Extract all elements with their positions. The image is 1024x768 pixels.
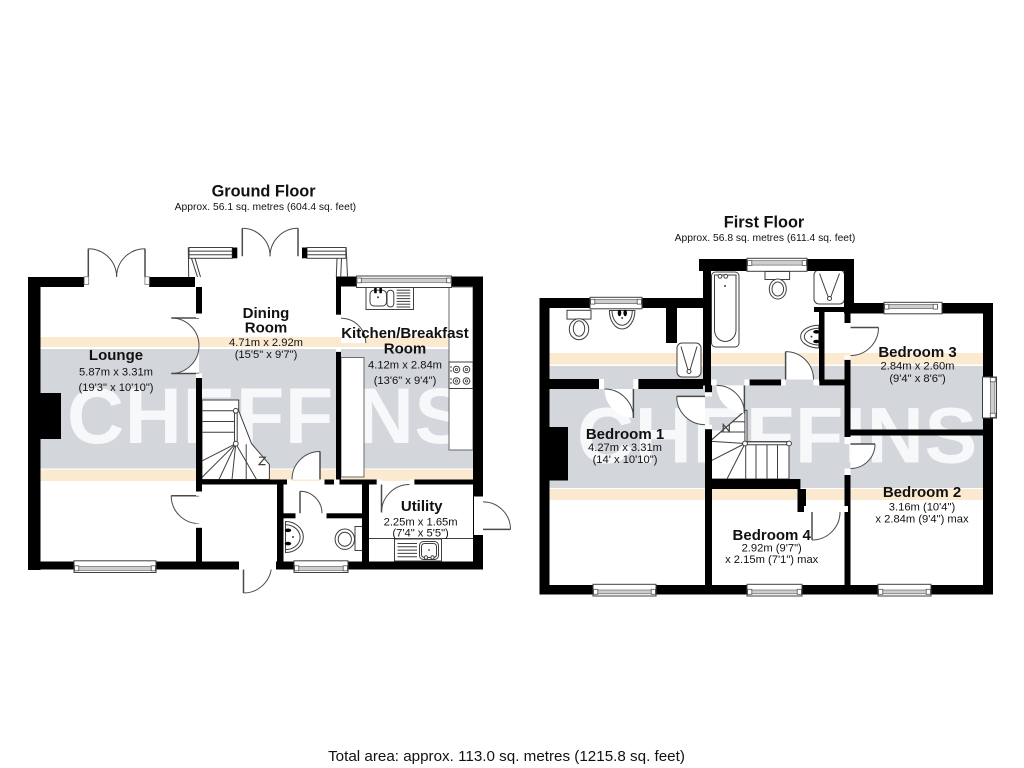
svg-text:Bedroom 2: Bedroom 2 — [883, 484, 961, 501]
svg-text:Approx. 56.8 sq. metres (611.4: Approx. 56.8 sq. metres (611.4 sq. feet) — [675, 233, 856, 244]
svg-text:Approx. 56.1 sq. metres (604.4: Approx. 56.1 sq. metres (604.4 sq. feet) — [175, 202, 356, 213]
svg-text:Bedroom 3: Bedroom 3 — [878, 344, 956, 361]
svg-text:Total area: approx. 113.0 sq.: Total area: approx. 113.0 sq. metres (12… — [328, 748, 685, 765]
svg-text:Room: Room — [245, 320, 288, 337]
svg-text:x 2.84m (9'4") max: x 2.84m (9'4") max — [875, 514, 969, 526]
svg-text:First Floor: First Floor — [724, 214, 805, 232]
svg-text:Room: Room — [384, 341, 427, 358]
svg-text:4.27m x 3.31m: 4.27m x 3.31m — [588, 442, 662, 454]
svg-text:Kitchen/Breakfast: Kitchen/Breakfast — [341, 325, 469, 342]
svg-text:(14' x 10'10"): (14' x 10'10") — [593, 454, 658, 466]
svg-text:(19'3" x 10'10"): (19'3" x 10'10") — [78, 382, 153, 394]
svg-text:(15'5" x 9'7"): (15'5" x 9'7") — [235, 349, 298, 361]
svg-text:3.16m (10'4"): 3.16m (10'4") — [889, 502, 956, 514]
svg-text:2.92m (9'7"): 2.92m (9'7") — [742, 543, 802, 555]
svg-text:Bedroom 1: Bedroom 1 — [586, 426, 664, 443]
svg-text:Lounge: Lounge — [89, 347, 143, 364]
svg-text:Bedroom 4: Bedroom 4 — [733, 527, 812, 544]
svg-text:x 2.15m (7'1") max: x 2.15m (7'1") max — [725, 554, 819, 566]
svg-text:(13'6" x 9'4"): (13'6" x 9'4") — [374, 375, 437, 387]
svg-text:Utility: Utility — [401, 498, 443, 515]
svg-text:(7'4" x 5'5"): (7'4" x 5'5") — [392, 528, 449, 540]
svg-text:4.12m x 2.84m: 4.12m x 2.84m — [368, 360, 442, 372]
svg-text:5.87m x 3.31m: 5.87m x 3.31m — [79, 367, 153, 379]
svg-text:(9'4" x 8'6"): (9'4" x 8'6") — [889, 373, 946, 385]
svg-text:Ground Floor: Ground Floor — [212, 183, 317, 201]
svg-text:2.84m x 2.60m: 2.84m x 2.60m — [881, 361, 955, 373]
svg-text:4.71m x 2.92m: 4.71m x 2.92m — [229, 337, 303, 349]
